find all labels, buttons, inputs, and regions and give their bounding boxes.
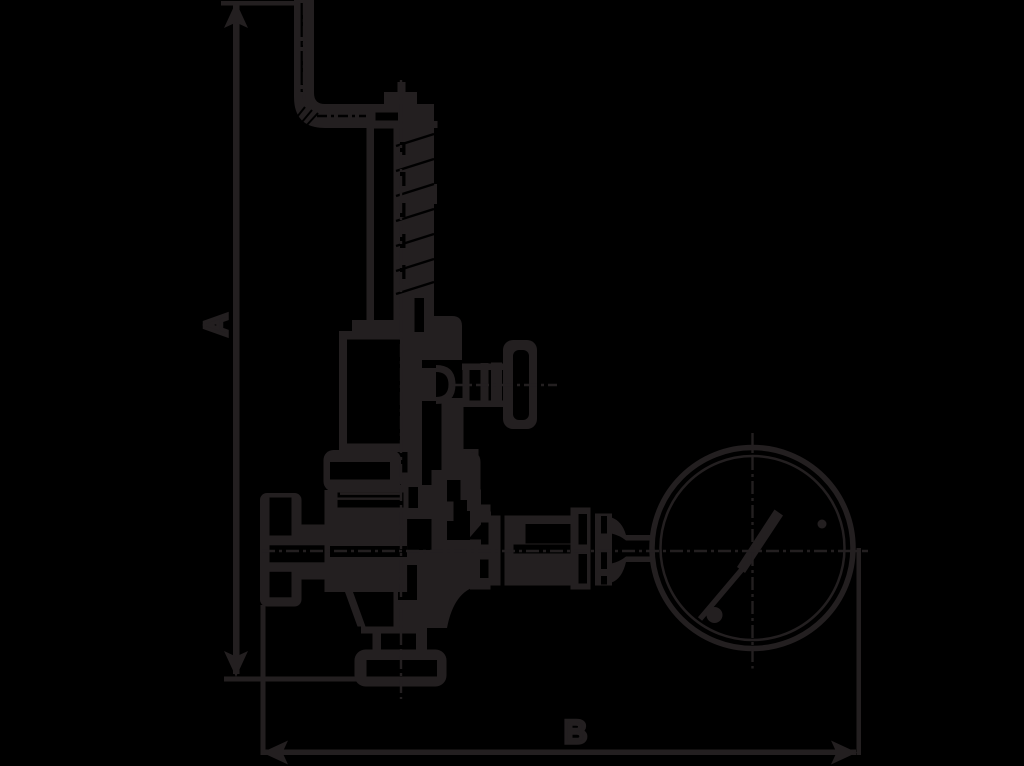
svg-text:A: A: [198, 313, 234, 336]
svg-text:B: B: [564, 714, 587, 750]
